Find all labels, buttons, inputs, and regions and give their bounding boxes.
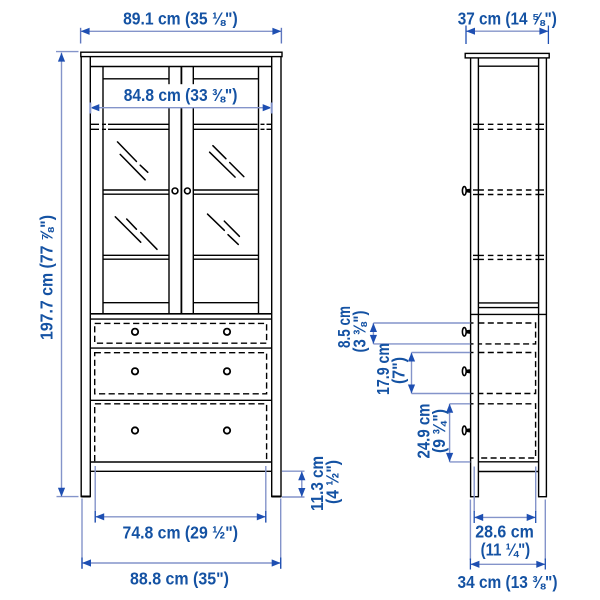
svg-text:89.1 cm (35 ⅛"): 89.1 cm (35 ⅛"): [123, 8, 238, 28]
svg-text:74.8 cm (29 ½"): 74.8 cm (29 ½"): [123, 523, 239, 543]
svg-text:(4 ½"): (4 ½"): [322, 460, 342, 504]
svg-text:84.8 cm (33 ⅜"): 84.8 cm (33 ⅜"): [124, 85, 238, 105]
svg-text:197.7 cm (77 ⅞"): 197.7 cm (77 ⅞"): [36, 215, 56, 340]
svg-text:37 cm (14 ⅝"): 37 cm (14 ⅝"): [458, 8, 557, 28]
svg-text:(9 ¾"): (9 ¾"): [429, 409, 449, 453]
svg-text:(7"): (7"): [389, 357, 409, 384]
svg-text:28.6 cm: 28.6 cm: [475, 522, 534, 542]
svg-text:(11 ¼"): (11 ¼"): [481, 540, 531, 560]
svg-text:34 cm (13 ⅜"): 34 cm (13 ⅜"): [458, 572, 558, 592]
svg-text:88.8 cm (35"): 88.8 cm (35"): [130, 569, 229, 589]
svg-text:(3 ⅜"): (3 ⅜"): [349, 311, 369, 353]
